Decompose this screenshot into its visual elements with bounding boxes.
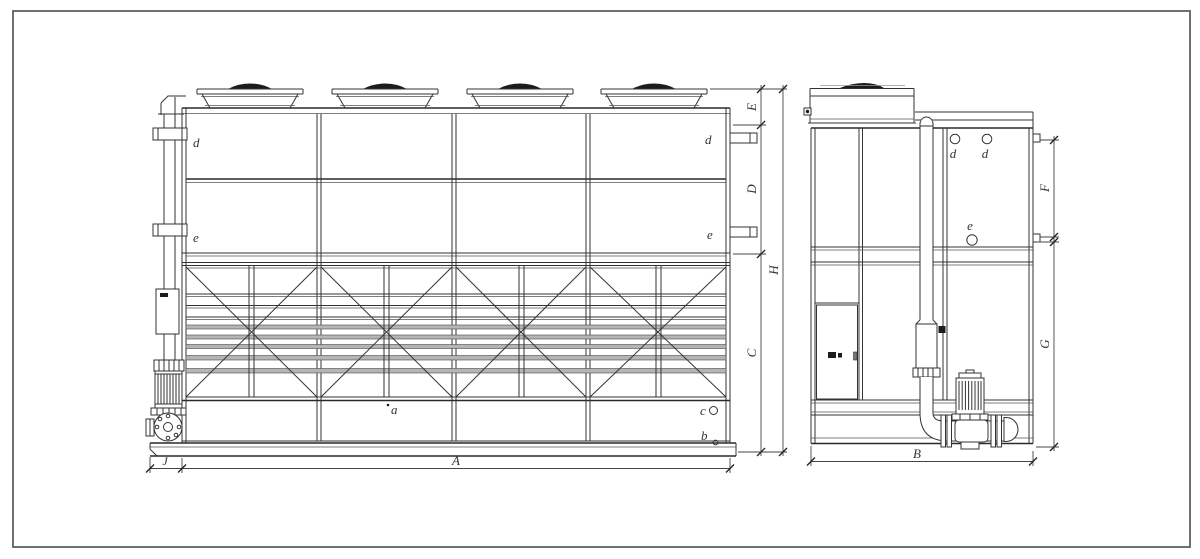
fan-cowl bbox=[197, 84, 303, 109]
casing-upper bbox=[182, 108, 730, 443]
connection-points: d d e bbox=[950, 134, 992, 245]
dim-D: D bbox=[744, 184, 759, 195]
drawing-sheet: d e d e a c b E D C bbox=[0, 0, 1200, 559]
fan-cowl-side bbox=[804, 83, 916, 123]
label-e-side: e bbox=[967, 218, 973, 233]
pipe-stub-d bbox=[730, 133, 757, 143]
label-d-left: d bbox=[193, 135, 200, 150]
pump-motor-front bbox=[155, 371, 182, 408]
pump-side bbox=[952, 370, 988, 449]
dim-G: G bbox=[1037, 339, 1052, 349]
pipe-flange bbox=[913, 368, 940, 377]
dim-B: B bbox=[913, 446, 921, 461]
label-c: c bbox=[700, 403, 706, 418]
side-dimensions-vertical: F G bbox=[1033, 134, 1059, 451]
pipe-stub-e bbox=[730, 227, 757, 237]
dim-C: C bbox=[744, 348, 759, 357]
connection-d2-circle bbox=[982, 134, 992, 144]
fan-cowl bbox=[332, 84, 438, 109]
label-e-left: e bbox=[193, 230, 199, 245]
access-door bbox=[815, 303, 859, 399]
side-dimension-bottom: B bbox=[807, 446, 1037, 466]
dim-F: F bbox=[1037, 183, 1052, 193]
flange-coupling bbox=[154, 360, 184, 371]
front-view: d e d e a c b E D C bbox=[146, 84, 787, 474]
dim-J: J bbox=[162, 454, 168, 468]
fan-cowl bbox=[467, 84, 573, 109]
nameplate-mark bbox=[828, 352, 836, 358]
label-a: a bbox=[391, 402, 398, 417]
connection-d1-circle bbox=[950, 134, 960, 144]
door-handle bbox=[854, 352, 858, 360]
base-rail bbox=[150, 443, 736, 456]
connection-e-circle bbox=[967, 235, 977, 245]
point-c-marker bbox=[710, 407, 718, 415]
dim-A: A bbox=[451, 453, 460, 468]
drawing-canvas: d e d e a c b E D C bbox=[0, 0, 1200, 559]
pipe-sensor bbox=[939, 326, 946, 333]
label-d1: d bbox=[950, 146, 957, 161]
riser-pipe-and-pump bbox=[146, 96, 187, 441]
side-view: d d e bbox=[804, 83, 1059, 466]
pump-volute-front bbox=[146, 413, 182, 441]
label-d2: d bbox=[982, 146, 989, 161]
dim-E: E bbox=[744, 103, 759, 112]
fan-cowl bbox=[601, 84, 707, 109]
dim-H: H bbox=[766, 265, 781, 276]
label-b: b bbox=[701, 428, 708, 443]
label-d-right: d bbox=[705, 132, 712, 147]
pump-volute-side bbox=[955, 420, 988, 442]
point-a-marker bbox=[387, 404, 390, 407]
fan-cowls bbox=[197, 84, 707, 109]
label-e-right: e bbox=[707, 227, 713, 242]
